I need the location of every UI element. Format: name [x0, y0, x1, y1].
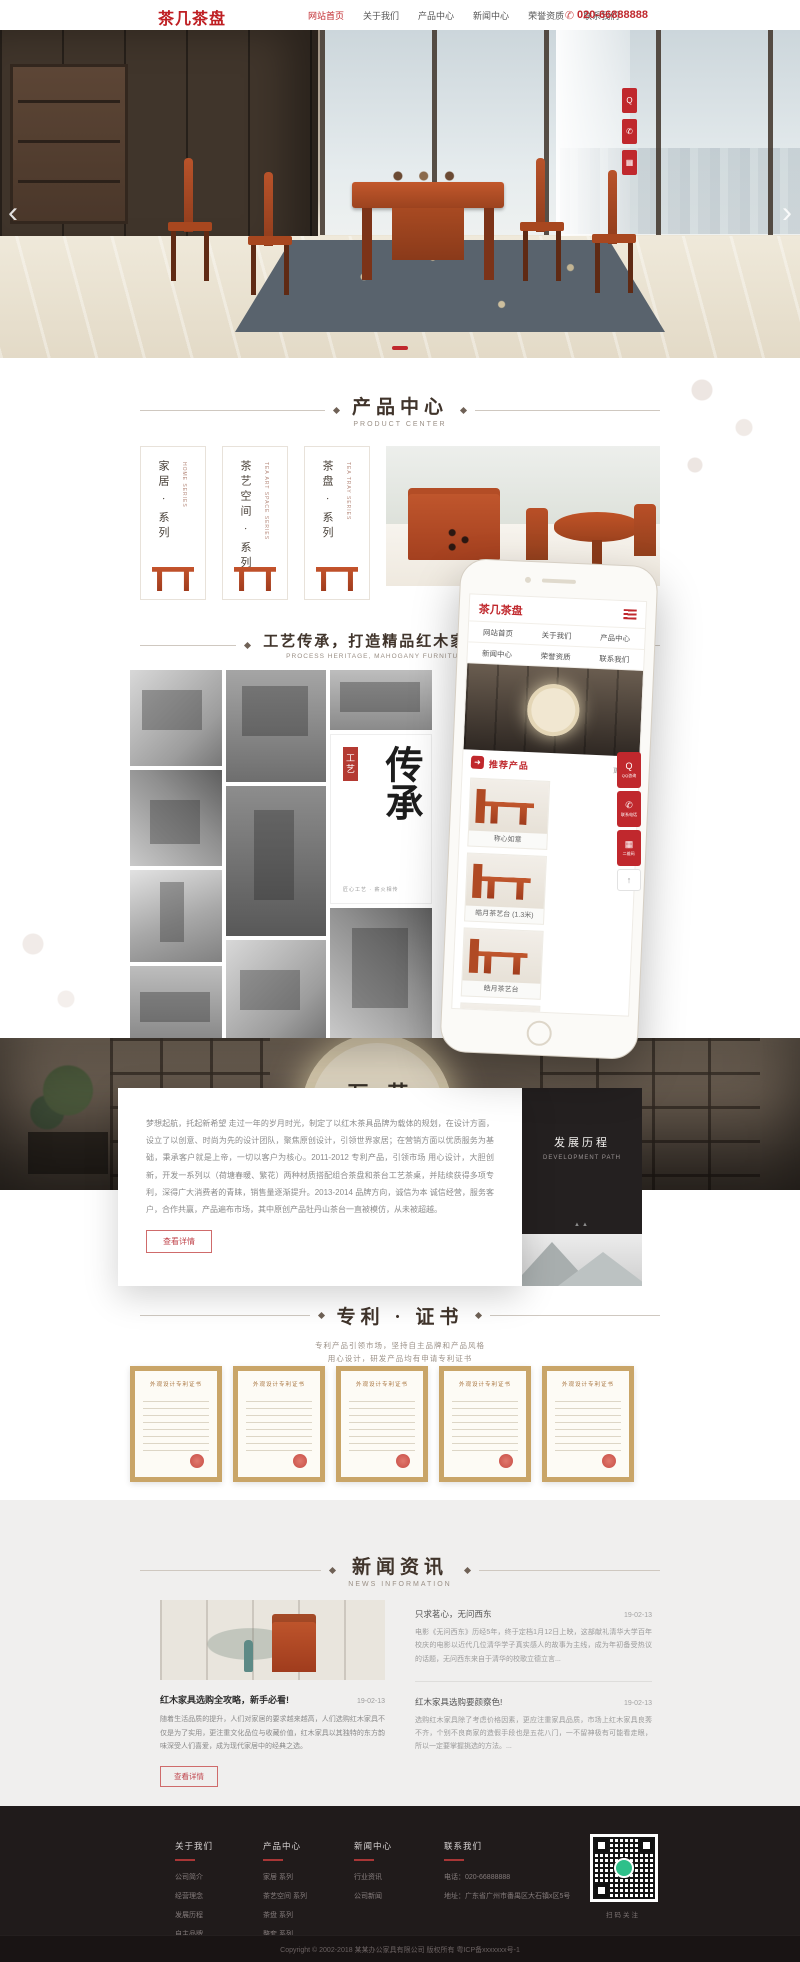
header-phone: ✆ 020-66888888 [565, 0, 648, 30]
company-intro-text: 梦想起航，托起新希望 走过一年的岁月时光，制定了以红木茶具品牌为载体的规划，在设… [146, 1115, 494, 1218]
product-thumb [462, 928, 542, 983]
news-title: 新闻资讯 NEWS INFORMATION [140, 1552, 660, 1588]
mobile-nav-about[interactable]: 关于我们 [527, 624, 587, 648]
qr-caption: 扫码关注 [590, 1909, 656, 1919]
seal-icon [602, 1454, 616, 1468]
site-logo[interactable]: 茶几茶盘 [158, 5, 226, 29]
category-thumb [152, 567, 194, 591]
slider-prev-icon[interactable]: ‹ [8, 198, 18, 228]
site-header: 茶几茶盘 网站首页 关于我们 产品中心 新闻中心 荣誉资质 联系我们 ✆ 020… [0, 0, 800, 30]
slider-dot-active[interactable] [392, 346, 408, 350]
dev-path-title: 发展历程 [522, 1134, 642, 1150]
footer-phone: 电话：020-66888888 [444, 1872, 586, 1882]
collage-photo [226, 786, 326, 936]
hamburger-icon[interactable] [623, 609, 636, 620]
qr-logo-dot [614, 1858, 634, 1878]
product-thumb [466, 854, 546, 909]
footer-address: 地址：广东省广州市番禺区大石镇x区5号 [444, 1891, 586, 1901]
qq-button[interactable]: Q QQ咨询 [617, 752, 641, 788]
nav-news[interactable]: 新闻中心 [473, 9, 509, 22]
collage-photo [330, 908, 432, 1038]
footer-col-news: 新闻中心 行业资讯 公司新闻 [354, 1840, 392, 1910]
nav-about[interactable]: 关于我们 [363, 9, 399, 22]
mountain-graphic [522, 1234, 642, 1286]
footer-col-products: 产品中心 家居 系列 茶艺空间 系列 茶盘 系列 整套 系列 [263, 1840, 307, 1948]
page: 茶几茶盘 网站首页 关于我们 产品中心 新闻中心 荣誉资质 联系我们 ✆ 020… [0, 0, 800, 1962]
company-intro-card: 梦想起航，托起新希望 走过一年的岁月时光，制定了以红木茶具品牌为载体的规划，在设… [118, 1088, 522, 1286]
section-title: 产品中心 [352, 392, 448, 419]
craft-collage: 工艺 传承 匠心工艺 · 薪火相传 [130, 670, 432, 1042]
footer-link[interactable]: 茶盘 系列 [263, 1910, 307, 1920]
certificate[interactable]: 外观设计专利证书 [130, 1366, 222, 1482]
floating-contact-bar: Q QQ咨询 ✆ 联系电话 ▦ 二维码 ↑ [617, 752, 641, 891]
phone-button[interactable]: ✆ 联系电话 [617, 791, 641, 827]
footer-qr: 扫码关注 [590, 1834, 656, 1919]
craft-caption: 匠心工艺 · 薪火相传 [343, 886, 398, 893]
certificate[interactable]: 外观设计专利证书 [336, 1366, 428, 1482]
news-image[interactable] [160, 1600, 385, 1680]
category-home-series[interactable]: 家居 · 系列 HOME SERIES [140, 446, 206, 600]
patents-desc-1: 专利产品引领市场，坚持自主品牌和产品风格 [140, 1340, 660, 1351]
footer-link[interactable]: 公司新闻 [354, 1891, 392, 1901]
mobile-product-card[interactable]: 称心如意 [467, 778, 550, 850]
mobile-nav-news[interactable]: 新闻中心 [467, 642, 527, 666]
craft-text-tile: 工艺 传承 匠心工艺 · 薪火相传 [330, 734, 432, 904]
collage-photo [130, 670, 222, 766]
nav-home[interactable]: 网站首页 [308, 9, 344, 22]
tel-icon: ✆ [625, 801, 633, 810]
floral-deco [660, 360, 800, 510]
featured-news-title[interactable]: 红木家具选购全攻略，新手必看! [160, 1693, 289, 1706]
up-arrow-icon: ↑ [627, 876, 632, 885]
news-item[interactable]: 红木家具选购要颜察色! 19-02-13 选购红木家具除了考虑价格因素，更应注重… [415, 1696, 652, 1754]
news-detail-button[interactable]: 查看详情 [160, 1766, 218, 1787]
news-list: 只求茗心，无问西东 19-02-13 电影《无问西东》历经5年，终于定档1月12… [415, 1608, 652, 1754]
seal-icon [499, 1454, 513, 1468]
news-item[interactable]: 只求茗心，无问西东 19-02-13 电影《无问西东》历经5年，终于定档1月12… [415, 1608, 652, 1666]
qr-icon: ▦ [625, 840, 634, 849]
diamond-icon [475, 1312, 482, 1319]
nav-products[interactable]: 产品中心 [418, 9, 454, 22]
footer-link[interactable]: 茶艺空间 系列 [263, 1891, 307, 1901]
category-thumb [234, 567, 276, 591]
collage-photo [130, 870, 222, 962]
certificate[interactable]: 外观设计专利证书 [542, 1366, 634, 1482]
phone-icon: ✆ [565, 9, 574, 22]
mobile-nav-products[interactable]: 产品中心 [585, 626, 645, 650]
mobile-product-card[interactable]: 皓月茶艺台 [461, 927, 544, 999]
category-thumb [316, 567, 358, 591]
nav-honor[interactable]: 荣誉资质 [528, 9, 564, 22]
collage-photo [130, 966, 222, 1038]
collage-photo [130, 770, 222, 866]
collage-photo [226, 670, 326, 782]
tel-icon[interactable]: ✆ [622, 119, 637, 144]
seal-icon [396, 1454, 410, 1468]
diamond-icon [460, 406, 467, 413]
mobile-product-grid: 称心如意 皓月茶艺台 (1.3米) 皓月茶艺台 国色天香 [451, 775, 638, 1016]
about-detail-button[interactable]: 查看详情 [146, 1230, 212, 1253]
featured-news-date: 19-02-13 [357, 1698, 385, 1705]
featured-news: 红木家具选购全攻略，新手必看! 19-02-13 随着生活品质的提升，人们对家居… [160, 1600, 385, 1787]
diamond-icon [464, 1566, 471, 1573]
craft-calligraphy: 传承 [381, 745, 419, 821]
mobile-logo: 茶几茶盘 [478, 601, 523, 619]
featured-news-text: 随着生活品质的提升，人们对家居的要求越来越高，人们选购红木家具不仅是为了实用，更… [160, 1713, 385, 1754]
mobile-product-card[interactable]: 皓月茶艺台 (1.3米) [464, 852, 547, 924]
mobile-product-card[interactable]: 国色天香 [457, 1002, 540, 1016]
certificate[interactable]: 外观设计专利证书 [439, 1366, 531, 1482]
mobile-nav-honor[interactable]: 荣誉资质 [526, 645, 586, 669]
qr-code [590, 1834, 658, 1902]
collage-photo [330, 670, 432, 730]
section-subtitle: PRODUCT CENTER [352, 421, 448, 428]
copyright-text: Copyright © 2002-2018 某某办公家具有限公司 版权所有 粤I… [280, 1945, 520, 1955]
patents-title: 专利 · 证书 [140, 1302, 660, 1329]
mobile-nav-home[interactable]: 网站首页 [468, 621, 528, 645]
product-center-title: 产品中心 PRODUCT CENTER [140, 392, 660, 428]
qq-icon: Q [625, 762, 632, 771]
phone-home-button [526, 1020, 552, 1046]
diamond-icon [244, 641, 251, 648]
diamond-icon [333, 406, 340, 413]
mobile-section-title: 推荐产品 [489, 757, 530, 772]
category-tea-tray-series[interactable]: 茶盘 · 系列 TEA TRAY SERIES [304, 446, 370, 600]
mobile-banner [464, 663, 644, 757]
chat-icon[interactable]: Q [622, 88, 637, 113]
slider-next-icon[interactable]: › [782, 198, 792, 228]
footer-link[interactable]: 家居 系列 [263, 1872, 307, 1882]
patents-desc-2: 用心设计，研发产品均有申请专利证书 [140, 1353, 660, 1364]
news-section: 新闻资讯 NEWS INFORMATION 红木家具选购全攻略，新手必看! 19… [0, 1500, 800, 1806]
certificates-row: 外观设计专利证书 外观设计专利证书 外观设计专利证书 外观设计专利证书 外观设计… [130, 1366, 634, 1482]
site-footer: 关于我们 公司简介 经营理念 发展历程 自主品牌 产品中心 家居 系列 茶艺空间… [0, 1806, 800, 1935]
dev-path-subtitle: DEVELOPMENT PATH [522, 1155, 642, 1161]
footer-col-about: 关于我们 公司简介 经营理念 发展历程 自主品牌 [175, 1840, 213, 1948]
diamond-icon [318, 1312, 325, 1319]
product-categories: 家居 · 系列 HOME SERIES 茶艺空间 · 系列 TEA ART SP… [140, 446, 370, 600]
copyright-bar: Copyright © 2002-2018 某某办公家具有限公司 版权所有 粤I… [0, 1935, 800, 1962]
seal-icon [293, 1454, 307, 1468]
craft-badge: 工艺 [343, 747, 358, 781]
collage-photo [226, 940, 326, 1038]
certificate[interactable]: 外观设计专利证书 [233, 1366, 325, 1482]
seal-icon [190, 1454, 204, 1468]
diamond-icon [329, 1566, 336, 1573]
development-path-panel[interactable]: 发展历程 DEVELOPMENT PATH ▲▲ [522, 1088, 642, 1286]
footer-link[interactable]: 公司简介 [175, 1872, 213, 1882]
footer-link[interactable]: 发展历程 [175, 1910, 213, 1920]
product-thumb [469, 779, 549, 834]
product-thumb [459, 1003, 539, 1016]
phone-number: 020-66888888 [577, 9, 648, 21]
qrcode-button[interactable]: ▦ 二维码 [617, 830, 641, 866]
category-tea-space-series[interactable]: 茶艺空间 · 系列 TEA ART SPACE SERIES [222, 446, 288, 600]
arrow-badge-icon: ➜ [471, 756, 485, 770]
hero-side-tabs: Q ✆ ▦ [622, 88, 637, 175]
hero-slider: ‹ › Q ✆ ▦ [0, 30, 800, 358]
phone-speaker [542, 578, 576, 583]
phone-camera [525, 577, 531, 583]
footer-link[interactable]: 经营理念 [175, 1891, 213, 1901]
mobile-nav-contact[interactable]: 联系我们 [584, 647, 644, 671]
footer-link[interactable]: 行业资讯 [354, 1872, 392, 1882]
divider [415, 1681, 652, 1682]
back-to-top-button[interactable]: ↑ [617, 869, 641, 891]
footer-col-contact: 联系我们 电话：020-66888888 地址：广东省广州市番禺区大石镇x区5号 [444, 1840, 586, 1910]
qr-icon[interactable]: ▦ [622, 150, 637, 175]
